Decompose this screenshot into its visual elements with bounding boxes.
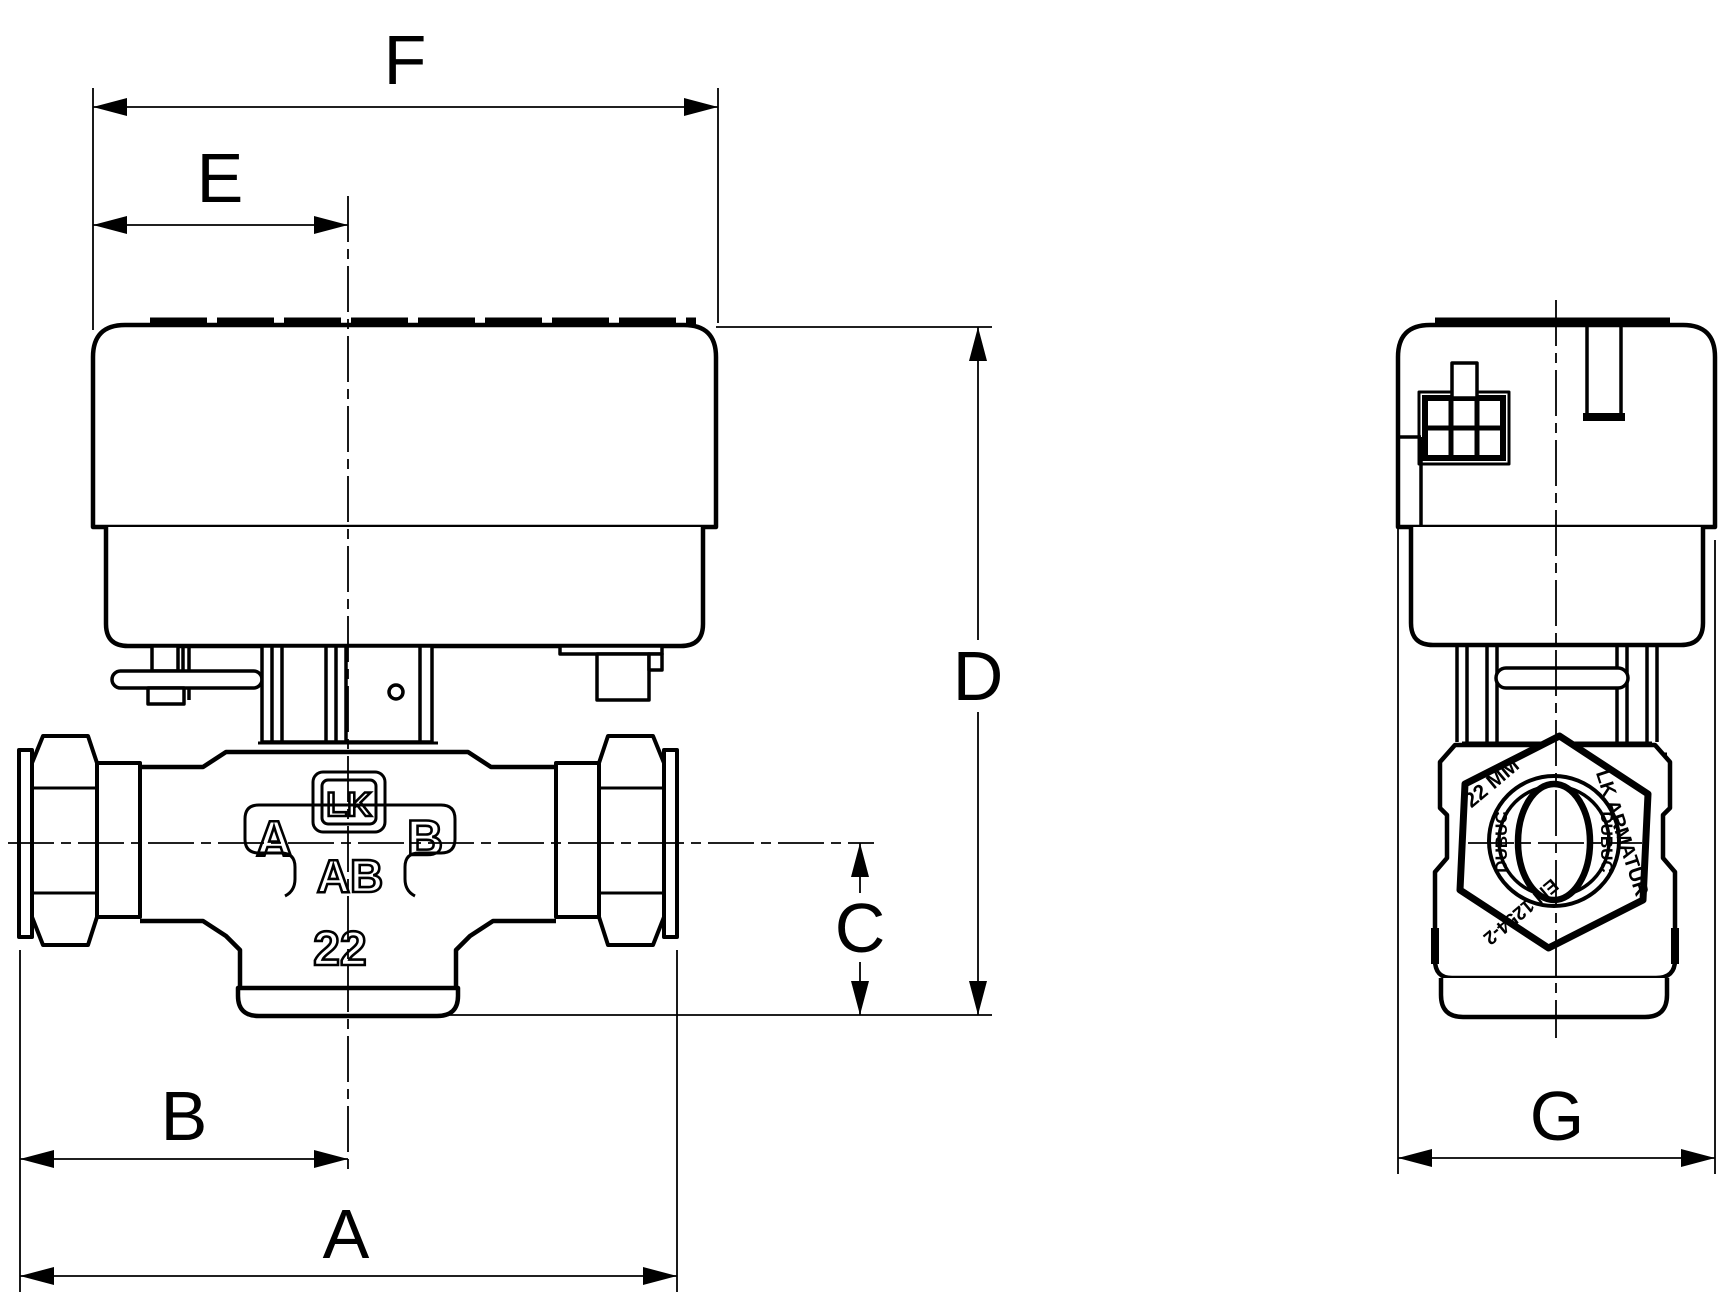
screw-detail <box>389 685 403 699</box>
compression-nut-right <box>599 736 664 945</box>
actuator-front <box>93 322 716 646</box>
body-bottom-left <box>140 921 240 988</box>
technical-drawing-page: LK A B AB 22 <box>0 0 1729 1300</box>
dimension-F-label: F <box>384 21 427 99</box>
dimension-C-label: C <box>835 889 886 967</box>
nut-ring-text-left: DUBUC <box>1492 811 1511 872</box>
actuator-skirt-side <box>1411 527 1703 645</box>
dimension-B: B <box>20 1077 348 1168</box>
manual-lever <box>112 671 262 688</box>
dimension-E: E <box>93 139 348 234</box>
body-foot-side <box>1441 978 1667 1017</box>
connector-tab <box>1452 363 1477 398</box>
lk-logo-text: LK <box>326 786 372 824</box>
nut-ring-text-right: DUBUC <box>1597 811 1616 872</box>
side-port-mark-left <box>1431 928 1439 964</box>
dimension-A-label: A <box>323 1195 370 1273</box>
body-bottom-right <box>456 921 556 988</box>
valve-markings: LK A B AB 22 <box>245 772 455 976</box>
side-port-mark-right <box>1671 928 1679 964</box>
front-view: LK A B AB 22 <box>19 322 716 1016</box>
dimension-G: G <box>1398 1077 1715 1167</box>
dimension-D-label: D <box>953 637 1004 715</box>
dimension-E-label: E <box>197 139 244 217</box>
port-ab-label: AB <box>317 850 383 902</box>
dimension-D: D <box>953 327 1004 1015</box>
dimension-F: F <box>93 21 718 116</box>
actuator-linkage <box>112 646 662 754</box>
compression-fitting-right <box>556 736 677 945</box>
dimension-G-label: G <box>1530 1077 1584 1155</box>
dimension-C: C <box>835 843 886 1015</box>
port-b-label: B <box>407 810 443 866</box>
valve-body-side: 22 MM LK ARMATUR EN 1254-2 DUBUC DUBUC <box>1431 736 1679 1017</box>
dimension-B-label: B <box>161 1077 208 1155</box>
compression-fitting-left <box>19 736 140 945</box>
valve-dimension-drawing: LK A B AB 22 <box>0 0 1729 1300</box>
size-22-label: 22 <box>313 923 366 976</box>
dimension-A: A <box>20 1195 677 1285</box>
compression-nut-left <box>32 736 97 945</box>
actuator-skirt <box>106 527 703 646</box>
lever-end-view <box>1496 668 1628 688</box>
port-a-label: A <box>256 811 292 867</box>
